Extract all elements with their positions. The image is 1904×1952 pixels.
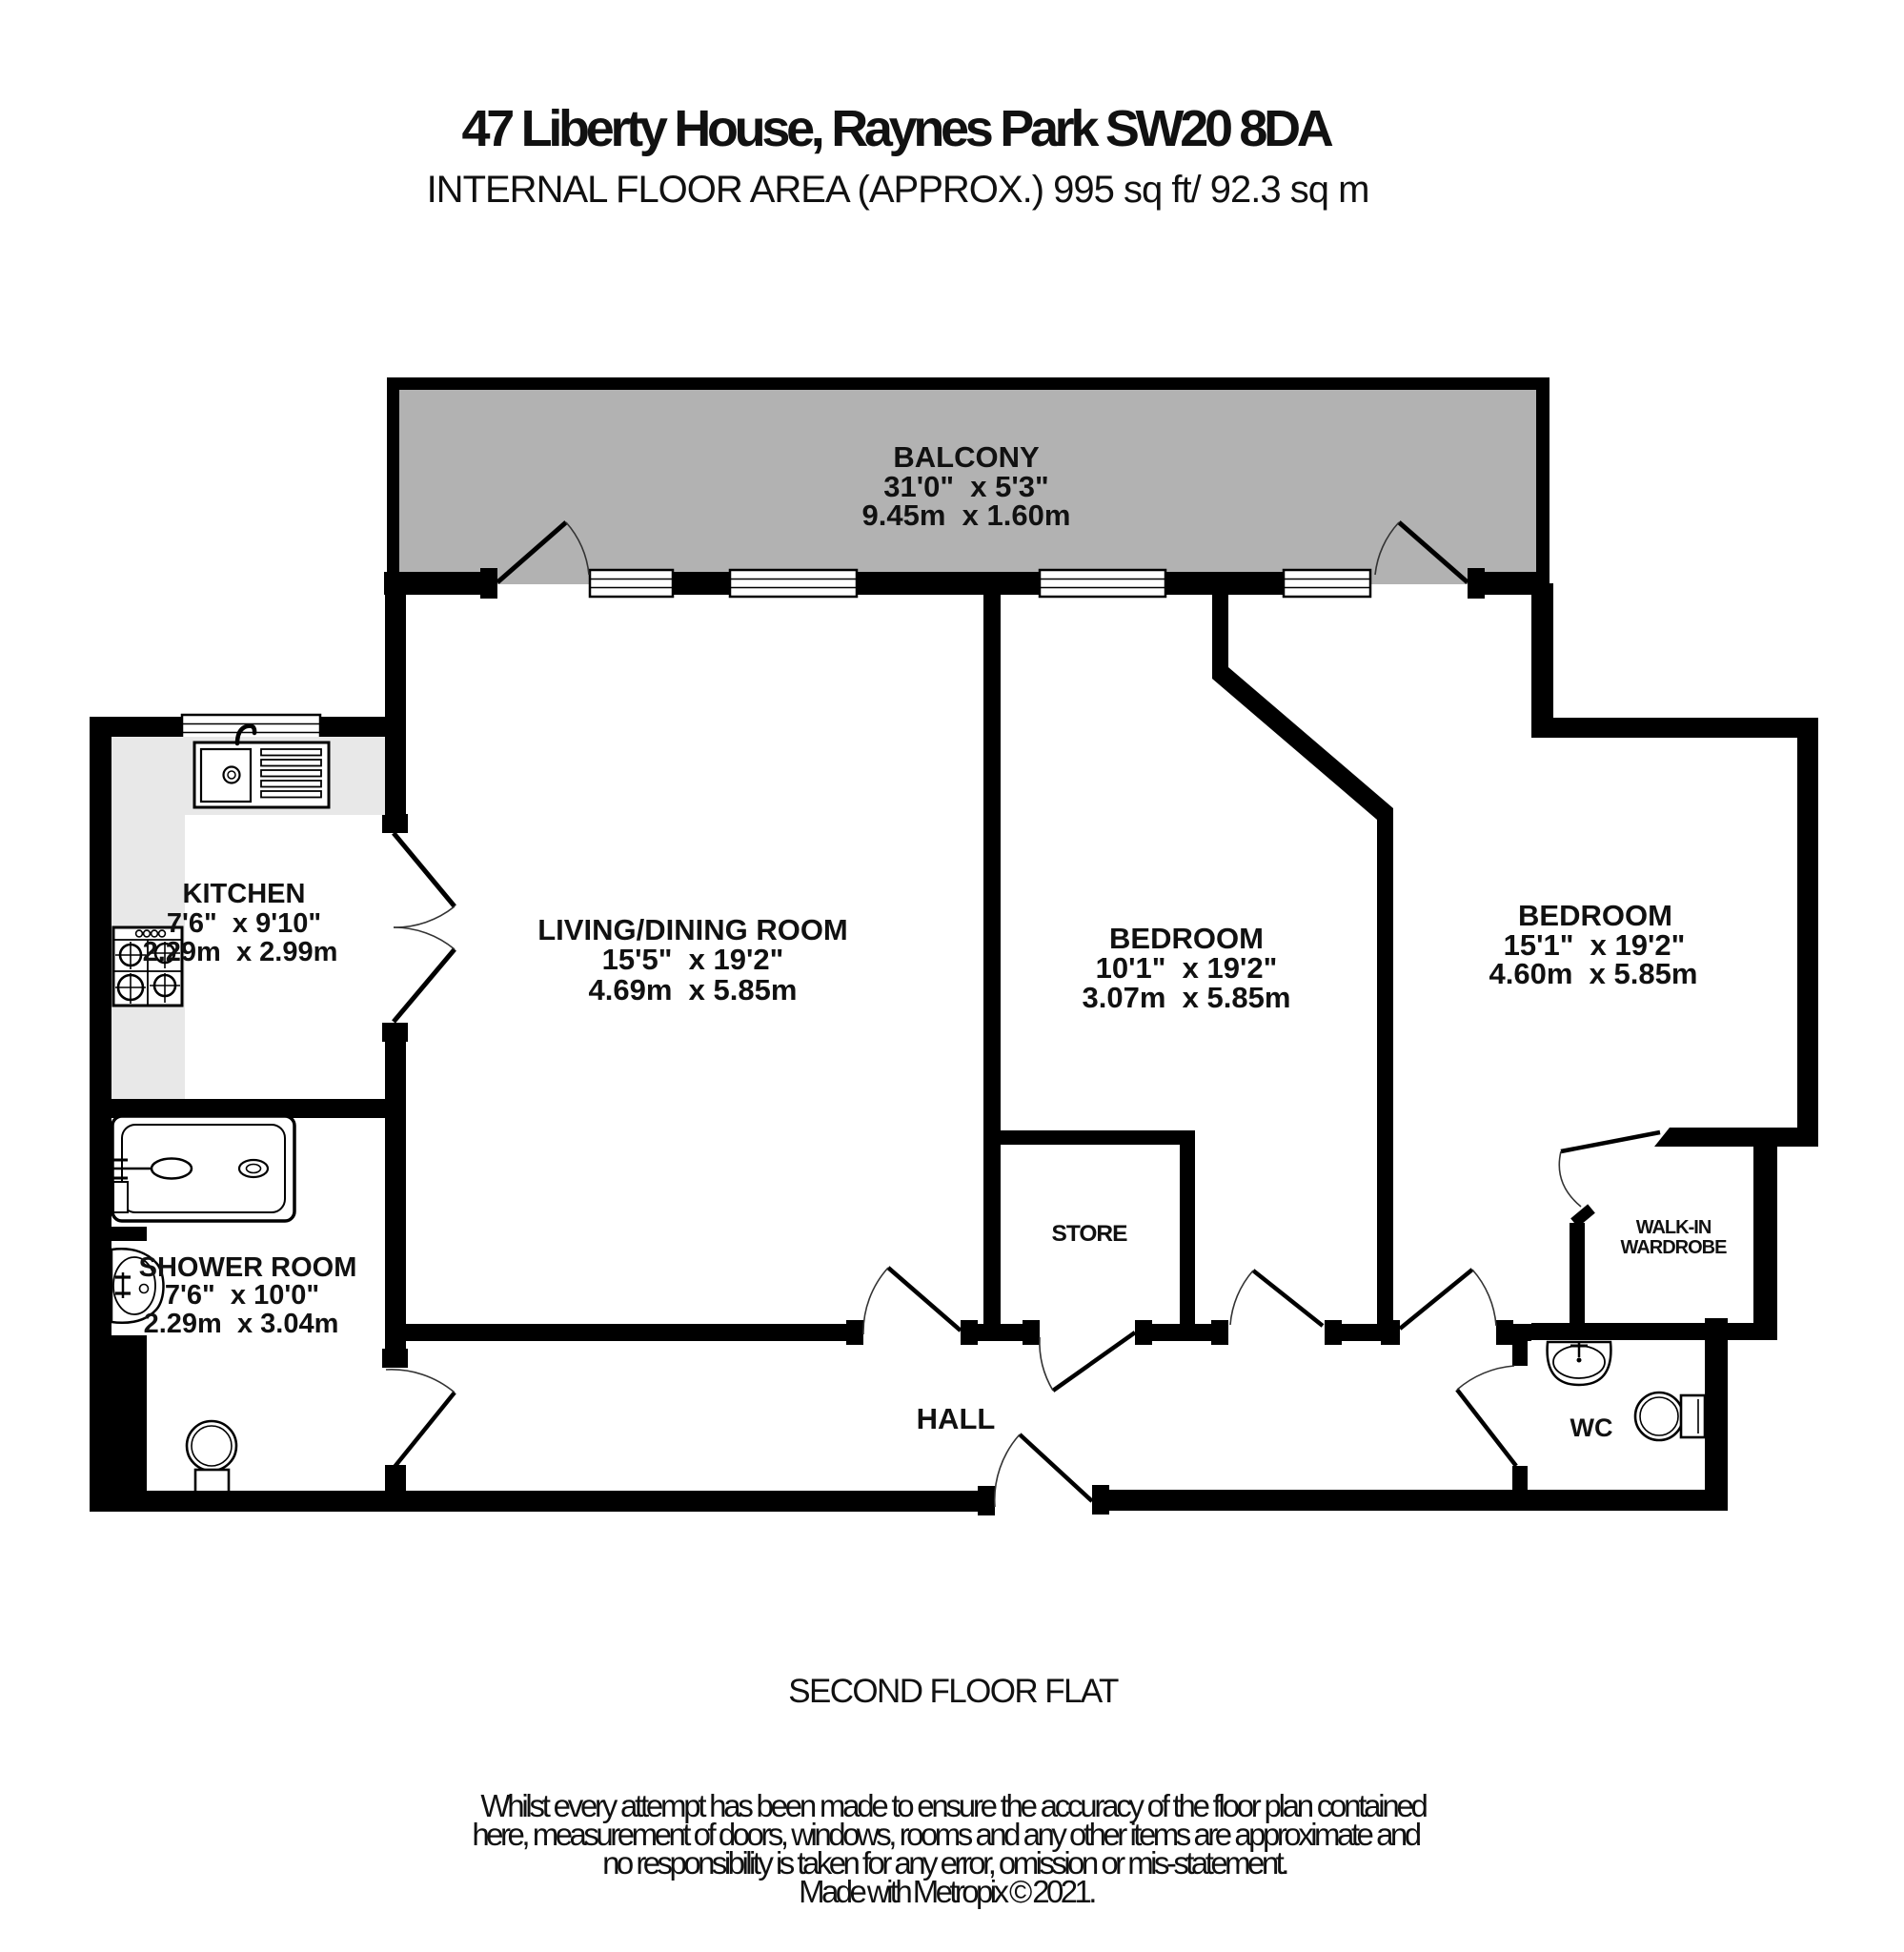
svg-text:KITCHEN: KITCHEN (183, 879, 306, 909)
svg-text:4.60m x 5.85m: 4.60m x 5.85m (1489, 957, 1698, 990)
svg-text:WALK-IN: WALK-IN (1636, 1217, 1712, 1238)
svg-text:BALCONY: BALCONY (893, 440, 1040, 474)
svg-text:7'6" x 9'10": 7'6" x 9'10" (167, 908, 321, 939)
svg-text:2.29m x 3.04m: 2.29m x 3.04m (144, 1309, 339, 1339)
svg-text:4.69m x 5.85m: 4.69m x 5.85m (589, 973, 798, 1006)
svg-text:WC: WC (1570, 1413, 1613, 1442)
svg-text:15'5" x 19'2": 15'5" x 19'2" (602, 943, 784, 976)
svg-text:WARDROBE: WARDROBE (1621, 1237, 1728, 1258)
svg-text:9.45m x 1.60m: 9.45m x 1.60m (862, 498, 1071, 532)
svg-text:LIVING/DINING ROOM: LIVING/DINING ROOM (537, 913, 848, 946)
svg-text:BEDROOM: BEDROOM (1518, 899, 1672, 932)
svg-text:10'1" x 19'2": 10'1" x 19'2" (1096, 951, 1278, 985)
svg-text:SECOND FLOOR FLAT: SECOND FLOOR FLAT (788, 1673, 1119, 1710)
svg-text:STORE: STORE (1052, 1221, 1128, 1247)
svg-text:SHOWER ROOM: SHOWER ROOM (139, 1252, 357, 1283)
svg-text:Made with Metropix © 2021.: Made with Metropix © 2021. (799, 1874, 1095, 1909)
svg-text:BEDROOM: BEDROOM (1109, 922, 1264, 955)
svg-text:HALL: HALL (917, 1402, 996, 1435)
svg-text:7'6" x 10'0": 7'6" x 10'0" (165, 1280, 319, 1311)
svg-text:47 Liberty House, Raynes Park: 47 Liberty House, Raynes Park SW20 8DA (461, 100, 1332, 157)
svg-text:3.07m x 5.85m: 3.07m x 5.85m (1083, 981, 1291, 1014)
svg-text:INTERNAL FLOOR AREA (APPROX.): INTERNAL FLOOR AREA (APPROX.) 995 sq ft/… (427, 169, 1369, 211)
svg-text:2.29m x 2.99m: 2.29m x 2.99m (143, 937, 338, 967)
